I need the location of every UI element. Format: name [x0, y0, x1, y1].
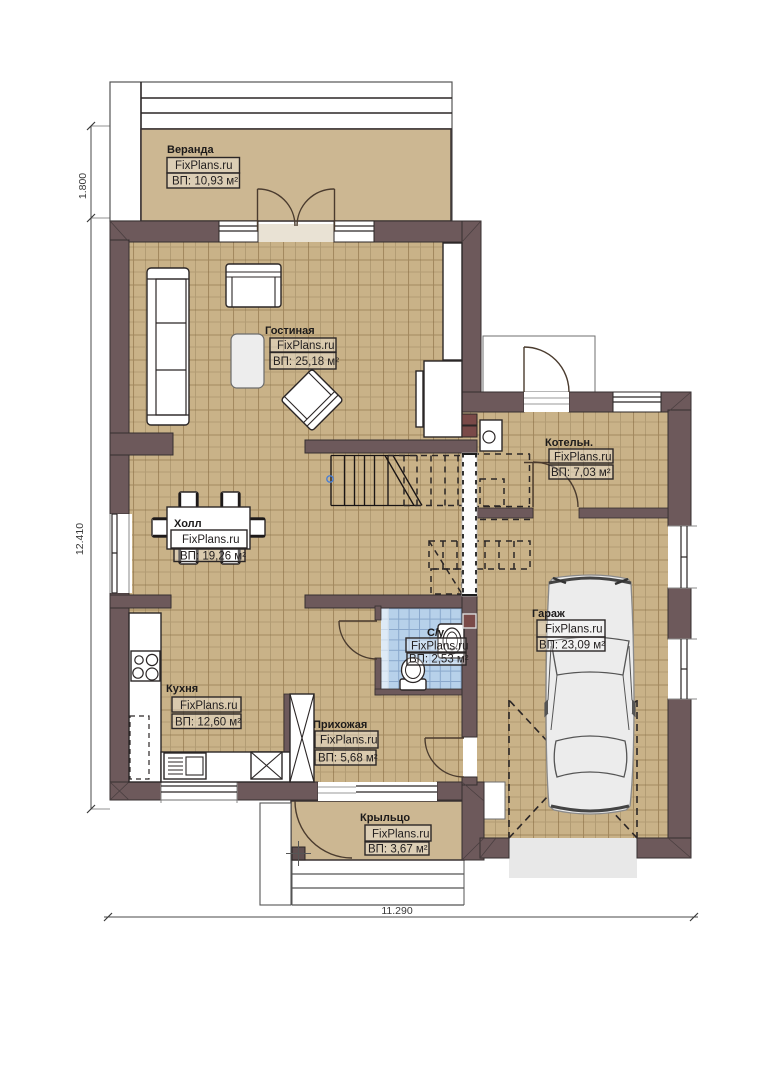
svg-text:12.410: 12.410: [74, 523, 86, 555]
svg-text:Крыльцо: Крыльцо: [360, 812, 410, 824]
svg-text:Гараж: Гараж: [532, 608, 565, 620]
svg-text:Прихожая: Прихожая: [313, 719, 367, 731]
svg-text:ВП: 3,67 м²: ВП: 3,67 м²: [368, 844, 428, 856]
svg-text:ВП: 12,60 м²: ВП: 12,60 м²: [175, 717, 241, 729]
svg-text:FixPlans.ru: FixPlans.ru: [411, 641, 469, 653]
svg-text:ВП: 19,26 м²: ВП: 19,26 м²: [180, 551, 246, 563]
svg-text:ВП: 5,68 м²: ВП: 5,68 м²: [318, 753, 378, 765]
svg-text:1.800: 1.800: [77, 173, 89, 199]
svg-text:11.290: 11.290: [381, 905, 412, 917]
svg-text:Холл: Холл: [174, 518, 202, 530]
svg-text:FixPlans.ru: FixPlans.ru: [182, 534, 240, 546]
svg-text:FixPlans.ru: FixPlans.ru: [180, 700, 238, 712]
svg-text:ВП: 23,09 м²: ВП: 23,09 м²: [539, 640, 605, 652]
svg-text:ВП: 10,93 м²: ВП: 10,93 м²: [172, 176, 238, 188]
svg-text:Веранда: Веранда: [167, 144, 215, 156]
svg-text:FixPlans.ru: FixPlans.ru: [175, 160, 233, 172]
svg-text:С/у: С/у: [427, 627, 445, 639]
svg-text:FixPlans.ru: FixPlans.ru: [545, 624, 603, 636]
svg-text:ВП: 25,18 м²: ВП: 25,18 м²: [273, 356, 339, 368]
svg-text:ВП: 2,53 м²: ВП: 2,53 м²: [409, 654, 469, 666]
svg-text:FixPlans.ru: FixPlans.ru: [372, 829, 430, 841]
svg-text:FixPlans.ru: FixPlans.ru: [320, 735, 378, 747]
svg-text:Котельн.: Котельн.: [545, 437, 593, 449]
svg-text:FixPlans.ru: FixPlans.ru: [554, 452, 612, 464]
svg-text:ВП: 7,03 м²: ВП: 7,03 м²: [551, 467, 611, 479]
svg-text:Кухня: Кухня: [166, 683, 198, 695]
svg-text:Гостиная: Гостиная: [265, 325, 315, 337]
svg-text:FixPlans.ru: FixPlans.ru: [277, 340, 335, 352]
